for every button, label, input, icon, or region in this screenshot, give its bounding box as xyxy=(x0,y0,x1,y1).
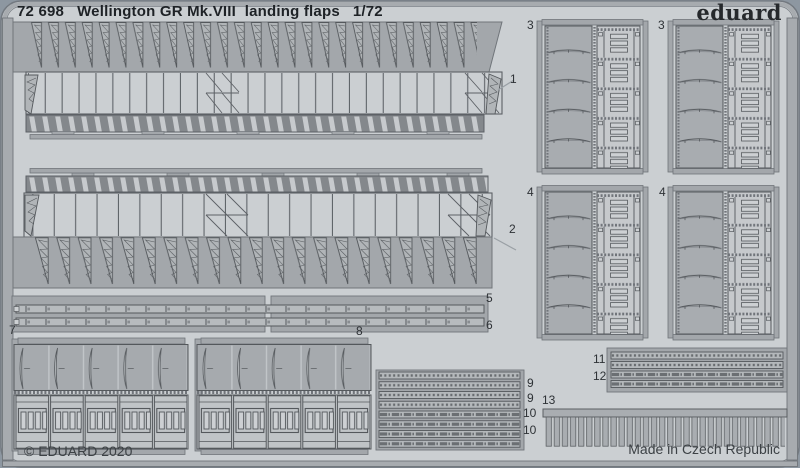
part-label-10a: 10 xyxy=(523,407,536,419)
part-label-3a: 3 xyxy=(527,19,534,31)
part-label-13: 13 xyxy=(542,394,555,406)
part-4b-graphic xyxy=(668,186,779,341)
fret-artwork xyxy=(0,0,800,468)
part-label-9b: 9 xyxy=(527,392,534,404)
parts-5-6-graphic xyxy=(12,296,488,332)
part-label-11: 11 xyxy=(593,353,605,365)
part-label-12: 12 xyxy=(593,370,606,382)
part-label-7: 7 xyxy=(9,324,16,336)
part-1-graphic xyxy=(13,22,502,139)
catalog-number: 72 698 xyxy=(17,3,64,20)
parts-9-10-graphic xyxy=(376,370,524,450)
part-7-graphic xyxy=(12,338,188,455)
part-label-2: 2 xyxy=(509,223,516,235)
part-label-6: 6 xyxy=(486,319,493,331)
part-label-8: 8 xyxy=(356,325,363,337)
photoetch-sheet: 72 698 Wellington GR Mk.VIII landing fla… xyxy=(0,0,800,468)
part-label-1: 1 xyxy=(510,73,517,85)
made-in-text: Made in Czech Republic xyxy=(628,441,780,457)
brand-logo: eduard xyxy=(696,0,782,25)
header: 72 698 Wellington GR Mk.VIII landing fla… xyxy=(17,3,383,20)
part-label-4a: 4 xyxy=(527,186,534,198)
part-2-graphic xyxy=(13,169,492,289)
part-label-3b: 3 xyxy=(658,19,665,31)
part-label-9a: 9 xyxy=(527,377,534,389)
copyright-text: © EDUARD 2020 xyxy=(24,443,132,459)
part-3b-graphic xyxy=(668,20,779,175)
part-label-5: 5 xyxy=(486,292,493,304)
part-label-10b: 10 xyxy=(523,424,536,436)
parts-11-12-graphic xyxy=(607,348,787,392)
part-label-4b: 4 xyxy=(659,186,666,198)
page-title: Wellington GR Mk.VIII landing flaps xyxy=(77,3,340,20)
part-4a-graphic xyxy=(537,186,648,341)
part-3a-graphic xyxy=(537,20,648,175)
scale-label: 1/72 xyxy=(353,3,383,20)
part-8-graphic xyxy=(195,338,371,455)
